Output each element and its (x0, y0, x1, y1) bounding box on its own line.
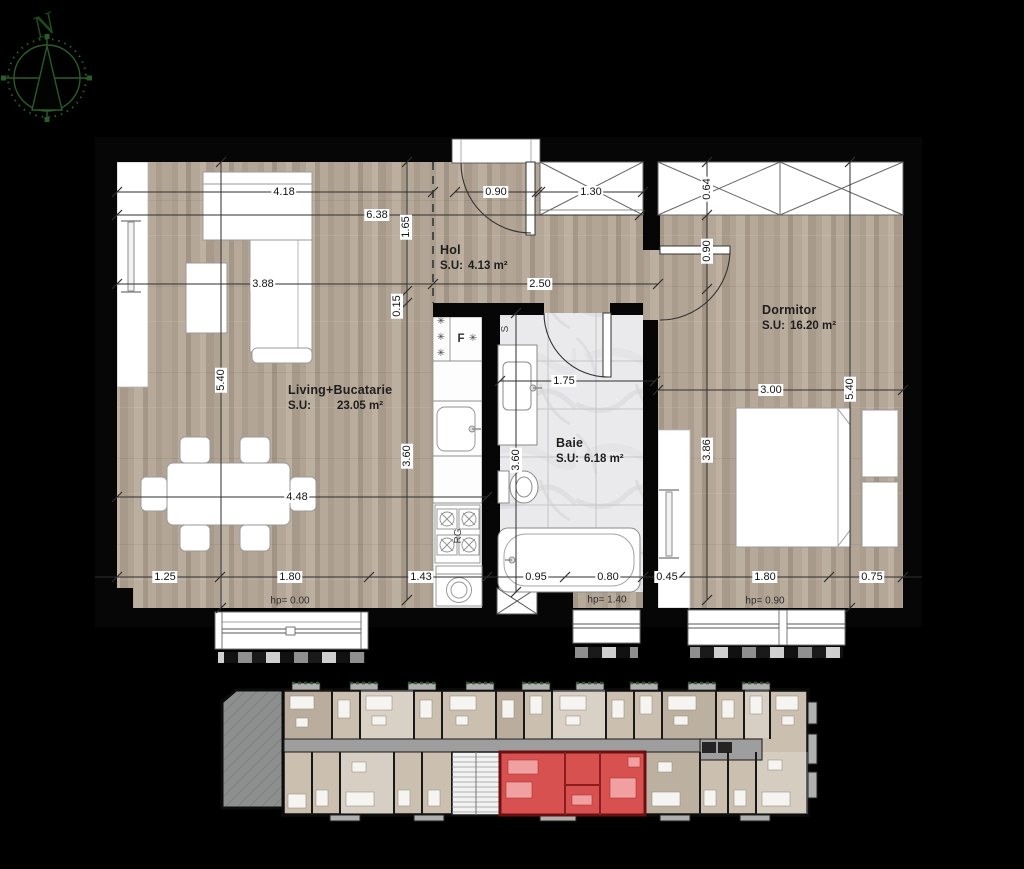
unit-furniture (296, 718, 308, 727)
highlighted-unit-furniture (628, 757, 640, 767)
unit-furniture (668, 696, 696, 710)
unit-furniture (352, 762, 366, 772)
unit-furniture (456, 716, 468, 725)
bathtub (498, 528, 640, 592)
floor-plan-page: N (0, 0, 1024, 869)
unit-furniture (560, 696, 586, 710)
north-label: N (26, 4, 62, 46)
kitchen-sink (437, 407, 481, 451)
living-window (215, 612, 368, 663)
terrace (222, 690, 283, 808)
unit-furniture (768, 760, 782, 770)
bed (736, 408, 851, 547)
unit-furniture (346, 792, 374, 806)
unit-furniture (776, 696, 798, 710)
unit-furniture (420, 700, 432, 718)
unit-furniture (652, 792, 680, 806)
washing-machine (436, 566, 482, 606)
unit-furniture (750, 696, 762, 714)
unit-furniture (782, 716, 794, 725)
bedroom-recess (658, 430, 690, 608)
corridor (284, 739, 702, 752)
unit-furniture (722, 700, 734, 718)
hallway-closet (540, 162, 643, 215)
nightstand (862, 482, 898, 547)
compass-north-icon: N (1, 4, 92, 122)
highlighted-unit-furniture (610, 778, 636, 798)
unit-furniture (658, 762, 672, 772)
bedroom-window (688, 610, 845, 658)
unit-furniture (502, 700, 514, 718)
highlighted-unit-furniture (572, 795, 592, 805)
bedroom-wardrobe (658, 162, 903, 215)
balcony (660, 815, 690, 821)
stove (435, 505, 480, 563)
unit-furniture (640, 696, 652, 714)
unit-furniture (290, 696, 314, 709)
elevator-shaft (718, 742, 732, 753)
floor-plan-drawing: N (0, 0, 1024, 869)
bathroom-window (573, 610, 640, 658)
unit-furniture (530, 696, 542, 714)
balcony (330, 815, 360, 821)
unit-furniture (372, 716, 386, 725)
unit-furniture (316, 790, 328, 806)
unit-furniture (762, 792, 790, 806)
unit-furniture (338, 700, 350, 718)
nightstand (862, 410, 898, 477)
unit-furniture (398, 790, 410, 806)
unit-furniture (428, 790, 440, 806)
highlighted-unit-furniture (506, 782, 532, 798)
unit-furniture (734, 790, 746, 806)
unit-furniture (674, 716, 688, 725)
balcony (808, 702, 817, 724)
unit-furniture (566, 716, 580, 725)
vanity-sink (498, 345, 542, 445)
unit-furniture (704, 790, 716, 806)
balcony (740, 815, 770, 821)
balcony (414, 815, 444, 821)
unit-furniture (366, 696, 392, 710)
elevator-shaft (702, 742, 716, 753)
balcony (808, 734, 817, 764)
highlighted-unit-furniture (508, 760, 538, 774)
unit-furniture (288, 794, 306, 808)
toilet (498, 471, 538, 503)
balcony (808, 772, 817, 798)
unit-furniture (612, 700, 624, 718)
unit-furniture (450, 696, 476, 710)
